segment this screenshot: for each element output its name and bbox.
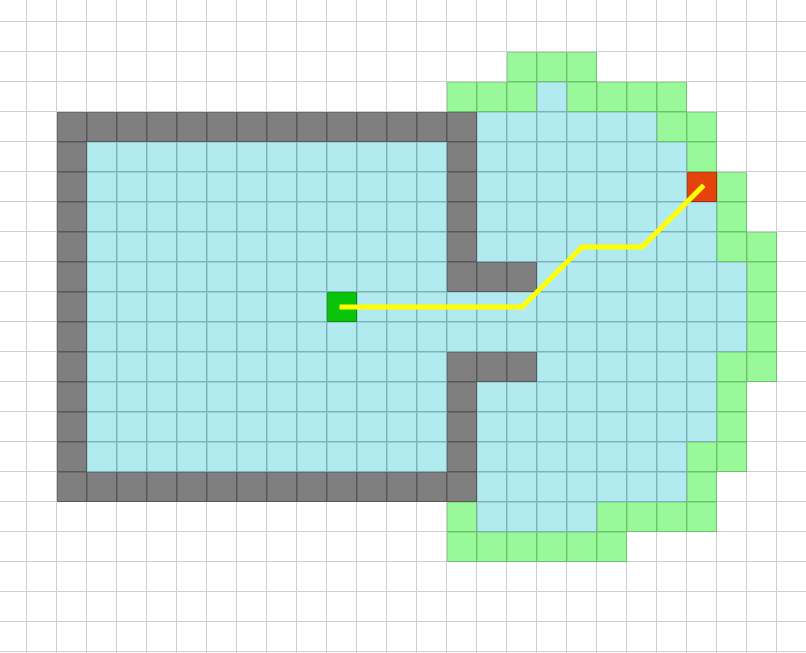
wall-cell	[447, 352, 477, 382]
free-cell	[237, 292, 267, 322]
free-cell	[507, 292, 537, 322]
empty-cell	[87, 592, 117, 622]
free-cell	[297, 442, 327, 472]
free-cell	[417, 142, 447, 172]
wall-cell	[237, 112, 267, 142]
empty-cell	[567, 22, 597, 52]
wall-cell	[87, 472, 117, 502]
wall-cell	[87, 112, 117, 142]
frontier-cell	[507, 52, 537, 82]
free-cell	[177, 142, 207, 172]
empty-cell	[27, 262, 57, 292]
empty-cell	[537, 562, 567, 592]
free-cell	[177, 412, 207, 442]
free-cell	[207, 142, 237, 172]
wall-cell	[117, 112, 147, 142]
empty-cell	[447, 0, 477, 22]
free-cell	[657, 262, 687, 292]
empty-cell	[537, 592, 567, 622]
empty-cell	[627, 0, 657, 22]
empty-cell	[657, 22, 687, 52]
free-cell	[147, 142, 177, 172]
free-cell	[387, 292, 417, 322]
free-cell	[387, 382, 417, 412]
free-cell	[357, 172, 387, 202]
empty-cell	[507, 562, 537, 592]
empty-cell	[597, 22, 627, 52]
free-cell	[687, 352, 717, 382]
free-cell	[117, 322, 147, 352]
free-cell	[177, 262, 207, 292]
free-cell	[507, 412, 537, 442]
empty-cell	[297, 562, 327, 592]
free-cell	[147, 292, 177, 322]
frontier-cell	[717, 232, 747, 262]
empty-cell	[27, 532, 57, 562]
free-cell	[567, 112, 597, 142]
free-cell	[537, 442, 567, 472]
empty-cell	[147, 22, 177, 52]
wall-cell	[387, 112, 417, 142]
empty-cell	[27, 502, 57, 532]
empty-cell	[717, 142, 747, 172]
empty-cell	[297, 22, 327, 52]
free-cell	[657, 202, 687, 232]
empty-cell	[387, 592, 417, 622]
empty-cell	[747, 532, 777, 562]
free-cell	[117, 262, 147, 292]
free-cell	[327, 412, 357, 442]
free-cell	[627, 142, 657, 172]
empty-cell	[0, 112, 27, 142]
empty-cell	[117, 532, 147, 562]
empty-cell	[0, 172, 27, 202]
free-cell	[177, 172, 207, 202]
free-cell	[267, 292, 297, 322]
frontier-cell	[447, 502, 477, 532]
empty-cell	[237, 592, 267, 622]
free-cell	[87, 232, 117, 262]
empty-cell	[357, 592, 387, 622]
empty-cell	[777, 22, 806, 52]
free-cell	[597, 412, 627, 442]
wall-cell	[447, 172, 477, 202]
free-cell	[537, 262, 567, 292]
free-cell	[537, 142, 567, 172]
wall-cell	[57, 262, 87, 292]
free-cell	[147, 352, 177, 382]
free-cell	[297, 382, 327, 412]
empty-cell	[267, 82, 297, 112]
free-cell	[117, 412, 147, 442]
free-cell	[297, 292, 327, 322]
empty-cell	[267, 562, 297, 592]
wall-cell	[207, 472, 237, 502]
free-cell	[327, 142, 357, 172]
free-cell	[507, 202, 537, 232]
free-cell	[207, 292, 237, 322]
empty-cell	[87, 622, 117, 652]
empty-cell	[567, 592, 597, 622]
free-cell	[387, 352, 417, 382]
wall-cell	[237, 472, 267, 502]
wall-cell	[447, 442, 477, 472]
free-cell	[717, 322, 747, 352]
empty-cell	[177, 52, 207, 82]
free-cell	[387, 262, 417, 292]
empty-cell	[27, 562, 57, 592]
empty-cell	[57, 0, 87, 22]
free-cell	[657, 142, 687, 172]
empty-cell	[747, 52, 777, 82]
free-cell	[177, 382, 207, 412]
frontier-cell	[747, 352, 777, 382]
free-cell	[237, 382, 267, 412]
free-cell	[357, 442, 387, 472]
empty-cell	[777, 352, 806, 382]
frontier-cell	[657, 82, 687, 112]
empty-cell	[417, 502, 447, 532]
free-cell	[357, 232, 387, 262]
free-cell	[267, 232, 297, 262]
empty-cell	[597, 562, 627, 592]
free-cell	[387, 442, 417, 472]
wall-cell	[447, 112, 477, 142]
empty-cell	[687, 82, 717, 112]
frontier-cell	[657, 502, 687, 532]
empty-cell	[27, 202, 57, 232]
free-cell	[567, 292, 597, 322]
empty-cell	[387, 52, 417, 82]
empty-cell	[717, 52, 747, 82]
empty-cell	[717, 112, 747, 142]
empty-cell	[777, 382, 806, 412]
empty-cell	[327, 52, 357, 82]
empty-cell	[57, 82, 87, 112]
empty-cell	[417, 562, 447, 592]
empty-cell	[417, 532, 447, 562]
wall-cell	[57, 352, 87, 382]
empty-cell	[327, 82, 357, 112]
free-cell	[597, 112, 627, 142]
empty-cell	[747, 142, 777, 172]
frontier-cell	[747, 262, 777, 292]
empty-cell	[417, 82, 447, 112]
empty-cell	[417, 52, 447, 82]
empty-cell	[627, 562, 657, 592]
free-cell	[237, 142, 267, 172]
empty-cell	[507, 22, 537, 52]
free-cell	[267, 262, 297, 292]
free-cell	[597, 142, 627, 172]
free-cell	[567, 442, 597, 472]
wall-cell	[117, 472, 147, 502]
wall-cell	[147, 472, 177, 502]
wall-cell	[447, 382, 477, 412]
free-cell	[657, 382, 687, 412]
frontier-cell	[627, 502, 657, 532]
wall-cell	[57, 412, 87, 442]
free-cell	[657, 172, 687, 202]
free-cell	[117, 142, 147, 172]
empty-cell	[0, 562, 27, 592]
free-cell	[177, 442, 207, 472]
free-cell	[417, 232, 447, 262]
empty-cell	[597, 592, 627, 622]
empty-cell	[687, 22, 717, 52]
free-cell	[207, 352, 237, 382]
empty-cell	[27, 82, 57, 112]
empty-cell	[87, 0, 117, 22]
empty-cell	[237, 622, 267, 652]
empty-cell	[747, 592, 777, 622]
frontier-cell	[507, 532, 537, 562]
free-cell	[87, 442, 117, 472]
empty-cell	[0, 52, 27, 82]
empty-cell	[267, 52, 297, 82]
empty-cell	[687, 52, 717, 82]
empty-cell	[117, 22, 147, 52]
empty-cell	[237, 82, 267, 112]
empty-cell	[327, 0, 357, 22]
free-cell	[477, 382, 507, 412]
free-cell	[597, 172, 627, 202]
free-cell	[417, 262, 447, 292]
free-cell	[87, 352, 117, 382]
empty-cell	[27, 232, 57, 262]
wall-cell	[477, 262, 507, 292]
free-cell	[567, 172, 597, 202]
free-cell	[537, 82, 567, 112]
empty-cell	[207, 52, 237, 82]
free-cell	[567, 472, 597, 502]
goal-marker	[687, 172, 717, 202]
frontier-cell	[447, 532, 477, 562]
empty-cell	[747, 412, 777, 442]
empty-cell	[117, 562, 147, 592]
empty-cell	[687, 592, 717, 622]
empty-cell	[27, 142, 57, 172]
wall-cell	[57, 322, 87, 352]
empty-cell	[147, 52, 177, 82]
free-cell	[687, 202, 717, 232]
frontier-cell	[717, 202, 747, 232]
empty-cell	[267, 532, 297, 562]
free-cell	[477, 322, 507, 352]
frontier-cell	[717, 412, 747, 442]
free-cell	[627, 382, 657, 412]
free-cell	[417, 412, 447, 442]
empty-cell	[267, 22, 297, 52]
free-cell	[537, 502, 567, 532]
free-cell	[297, 412, 327, 442]
empty-cell	[357, 562, 387, 592]
free-cell	[717, 292, 747, 322]
empty-cell	[57, 532, 87, 562]
free-cell	[567, 202, 597, 232]
empty-cell	[87, 22, 117, 52]
empty-cell	[57, 592, 87, 622]
empty-cell	[777, 472, 806, 502]
empty-cell	[597, 0, 627, 22]
free-cell	[567, 412, 597, 442]
free-cell	[357, 322, 387, 352]
free-cell	[147, 442, 177, 472]
frontier-cell	[477, 82, 507, 112]
free-cell	[567, 322, 597, 352]
empty-cell	[0, 292, 27, 322]
empty-cell	[297, 0, 327, 22]
empty-cell	[0, 532, 27, 562]
empty-cell	[327, 592, 357, 622]
empty-cell	[357, 0, 387, 22]
free-cell	[597, 232, 627, 262]
empty-cell	[747, 442, 777, 472]
free-cell	[567, 502, 597, 532]
free-cell	[327, 352, 357, 382]
empty-cell	[777, 442, 806, 472]
frontier-cell	[717, 352, 747, 382]
free-cell	[477, 442, 507, 472]
empty-cell	[27, 0, 57, 22]
free-cell	[627, 112, 657, 142]
free-cell	[237, 172, 267, 202]
wall-cell	[57, 172, 87, 202]
free-cell	[387, 142, 417, 172]
free-cell	[657, 352, 687, 382]
empty-cell	[387, 562, 417, 592]
empty-cell	[717, 0, 747, 22]
wall-cell	[447, 232, 477, 262]
empty-cell	[267, 0, 297, 22]
free-cell	[327, 262, 357, 292]
free-cell	[147, 202, 177, 232]
empty-cell	[777, 112, 806, 142]
empty-cell	[0, 22, 27, 52]
occupancy-grid-map[interactable]	[0, 0, 806, 653]
empty-cell	[327, 532, 357, 562]
free-cell	[117, 232, 147, 262]
empty-cell	[417, 0, 447, 22]
free-cell	[597, 202, 627, 232]
frontier-cell	[687, 502, 717, 532]
empty-cell	[267, 502, 297, 532]
empty-cell	[0, 352, 27, 382]
empty-cell	[417, 622, 447, 652]
free-cell	[687, 382, 717, 412]
empty-cell	[477, 22, 507, 52]
free-cell	[207, 412, 237, 442]
empty-cell	[777, 82, 806, 112]
empty-cell	[87, 502, 117, 532]
free-cell	[267, 142, 297, 172]
frontier-cell	[537, 532, 567, 562]
empty-cell	[657, 622, 687, 652]
frontier-cell	[717, 442, 747, 472]
free-cell	[597, 262, 627, 292]
free-cell	[537, 112, 567, 142]
free-cell	[327, 322, 357, 352]
free-cell	[597, 322, 627, 352]
free-cell	[597, 292, 627, 322]
free-cell	[207, 322, 237, 352]
free-cell	[87, 142, 117, 172]
free-cell	[537, 172, 567, 202]
empty-cell	[0, 202, 27, 232]
empty-cell	[687, 622, 717, 652]
free-cell	[687, 262, 717, 292]
free-cell	[687, 322, 717, 352]
free-cell	[567, 262, 597, 292]
empty-cell	[0, 0, 27, 22]
empty-cell	[27, 472, 57, 502]
wall-cell	[57, 202, 87, 232]
frontier-cell	[687, 442, 717, 472]
free-cell	[447, 292, 477, 322]
empty-cell	[627, 622, 657, 652]
wall-cell	[417, 472, 447, 502]
empty-cell	[537, 622, 567, 652]
empty-cell	[267, 622, 297, 652]
empty-cell	[387, 82, 417, 112]
free-cell	[387, 412, 417, 442]
free-cell	[627, 202, 657, 232]
empty-cell	[717, 502, 747, 532]
free-cell	[507, 142, 537, 172]
empty-cell	[777, 532, 806, 562]
free-cell	[477, 172, 507, 202]
free-cell	[597, 442, 627, 472]
free-cell	[657, 472, 687, 502]
empty-cell	[57, 22, 87, 52]
empty-cell	[0, 472, 27, 502]
empty-cell	[327, 562, 357, 592]
free-cell	[567, 382, 597, 412]
empty-cell	[777, 172, 806, 202]
frontier-cell	[477, 532, 507, 562]
empty-cell	[717, 562, 747, 592]
empty-cell	[57, 622, 87, 652]
empty-cell	[0, 442, 27, 472]
wall-cell	[297, 112, 327, 142]
empty-cell	[477, 0, 507, 22]
empty-cell	[237, 502, 267, 532]
free-cell	[477, 232, 507, 262]
free-cell	[477, 202, 507, 232]
free-cell	[237, 202, 267, 232]
empty-cell	[357, 52, 387, 82]
wall-cell	[447, 202, 477, 232]
free-cell	[387, 172, 417, 202]
free-cell	[477, 502, 507, 532]
empty-cell	[567, 562, 597, 592]
empty-cell	[387, 502, 417, 532]
free-cell	[267, 172, 297, 202]
free-cell	[357, 202, 387, 232]
empty-cell	[567, 622, 597, 652]
frontier-cell	[567, 52, 597, 82]
empty-cell	[297, 532, 327, 562]
empty-cell	[657, 562, 687, 592]
empty-cell	[237, 562, 267, 592]
empty-cell	[717, 82, 747, 112]
empty-cell	[27, 622, 57, 652]
empty-cell	[27, 22, 57, 52]
empty-cell	[147, 532, 177, 562]
free-cell	[567, 232, 597, 262]
empty-cell	[777, 292, 806, 322]
free-cell	[357, 412, 387, 442]
